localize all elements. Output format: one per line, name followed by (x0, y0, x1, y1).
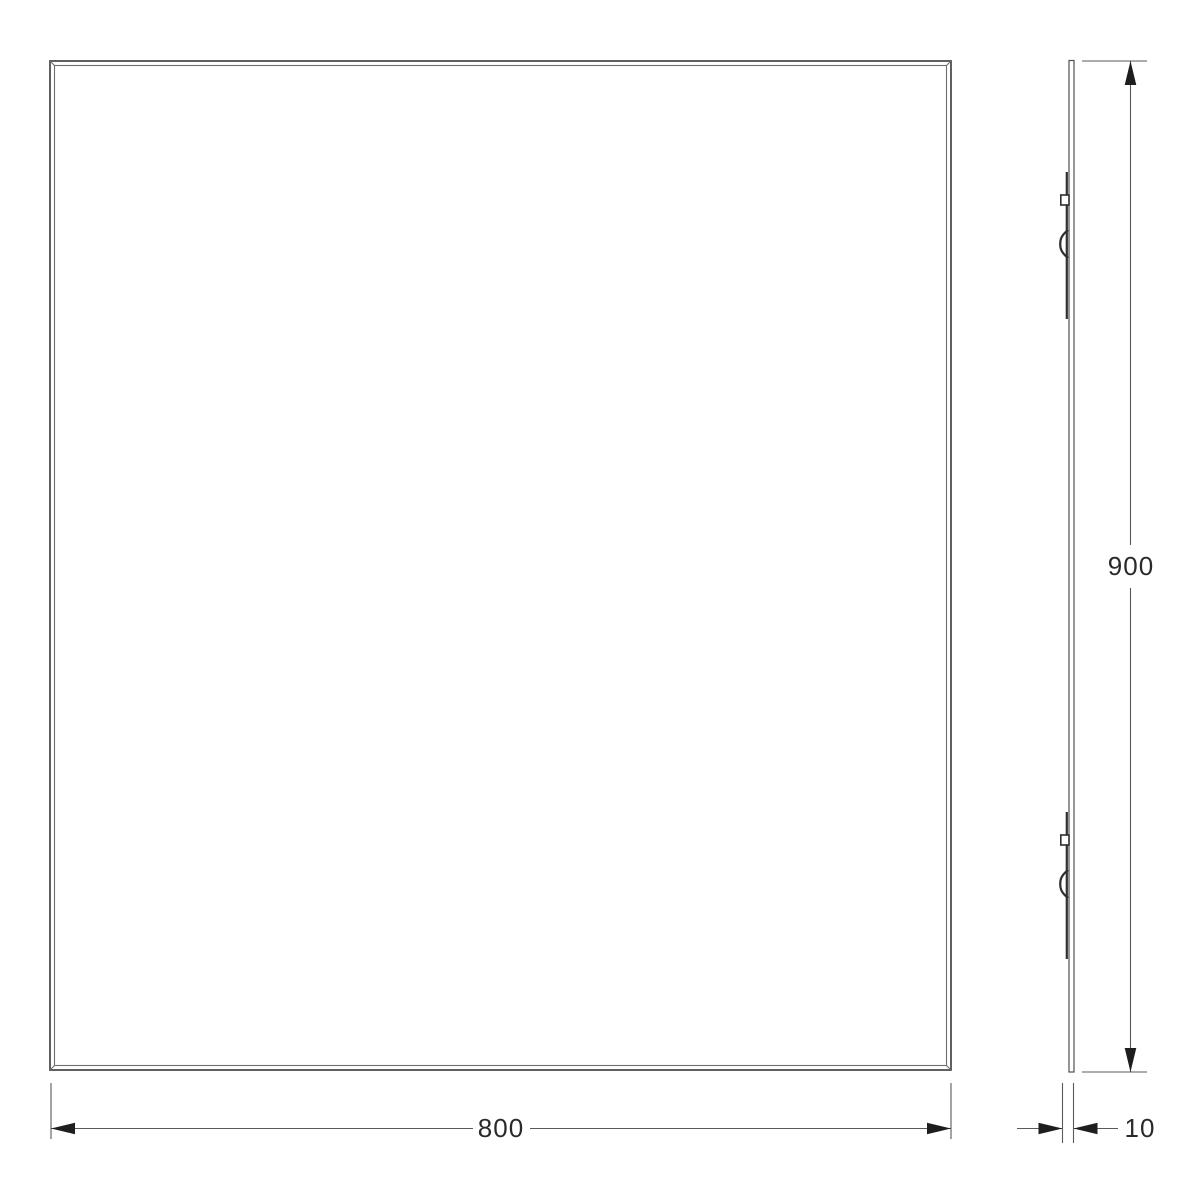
side-view-panel (1069, 61, 1074, 1073)
technical-drawing-page: 800 900 10 (0, 0, 1200, 1200)
width-arrow-left-icon (51, 1123, 75, 1135)
bracket-clip-bottom (1061, 835, 1069, 845)
width-arrow-right-icon (927, 1123, 951, 1135)
height-dimension-label: 900 (1108, 551, 1154, 581)
bracket-clip-top (1061, 195, 1069, 205)
width-dimension-label: 800 (478, 1113, 524, 1143)
depth-arrows (1039, 1123, 1098, 1135)
height-arrow-up-icon (1125, 61, 1137, 85)
front-view (50, 61, 951, 1070)
depth-arrow-left-icon (1074, 1123, 1098, 1135)
side-view (1060, 61, 1074, 1073)
mounting-bracket-top (1060, 172, 1069, 319)
mounting-bracket-bottom (1060, 812, 1069, 959)
front-view-inner-edge (55, 66, 947, 1066)
dimension-depth: 10 (1017, 1083, 1155, 1143)
front-view-bevel-lines (50, 61, 951, 1070)
height-arrow-down-icon (1125, 1048, 1137, 1072)
depth-arrow-right-icon (1039, 1123, 1063, 1135)
depth-dimension-label: 10 (1125, 1113, 1156, 1143)
technical-drawing-canvas: 800 900 10 (0, 0, 1200, 1200)
dimension-height: 900 (1082, 61, 1154, 1072)
front-view-outer-edge (50, 61, 951, 1070)
dimension-width: 800 (51, 1083, 951, 1143)
